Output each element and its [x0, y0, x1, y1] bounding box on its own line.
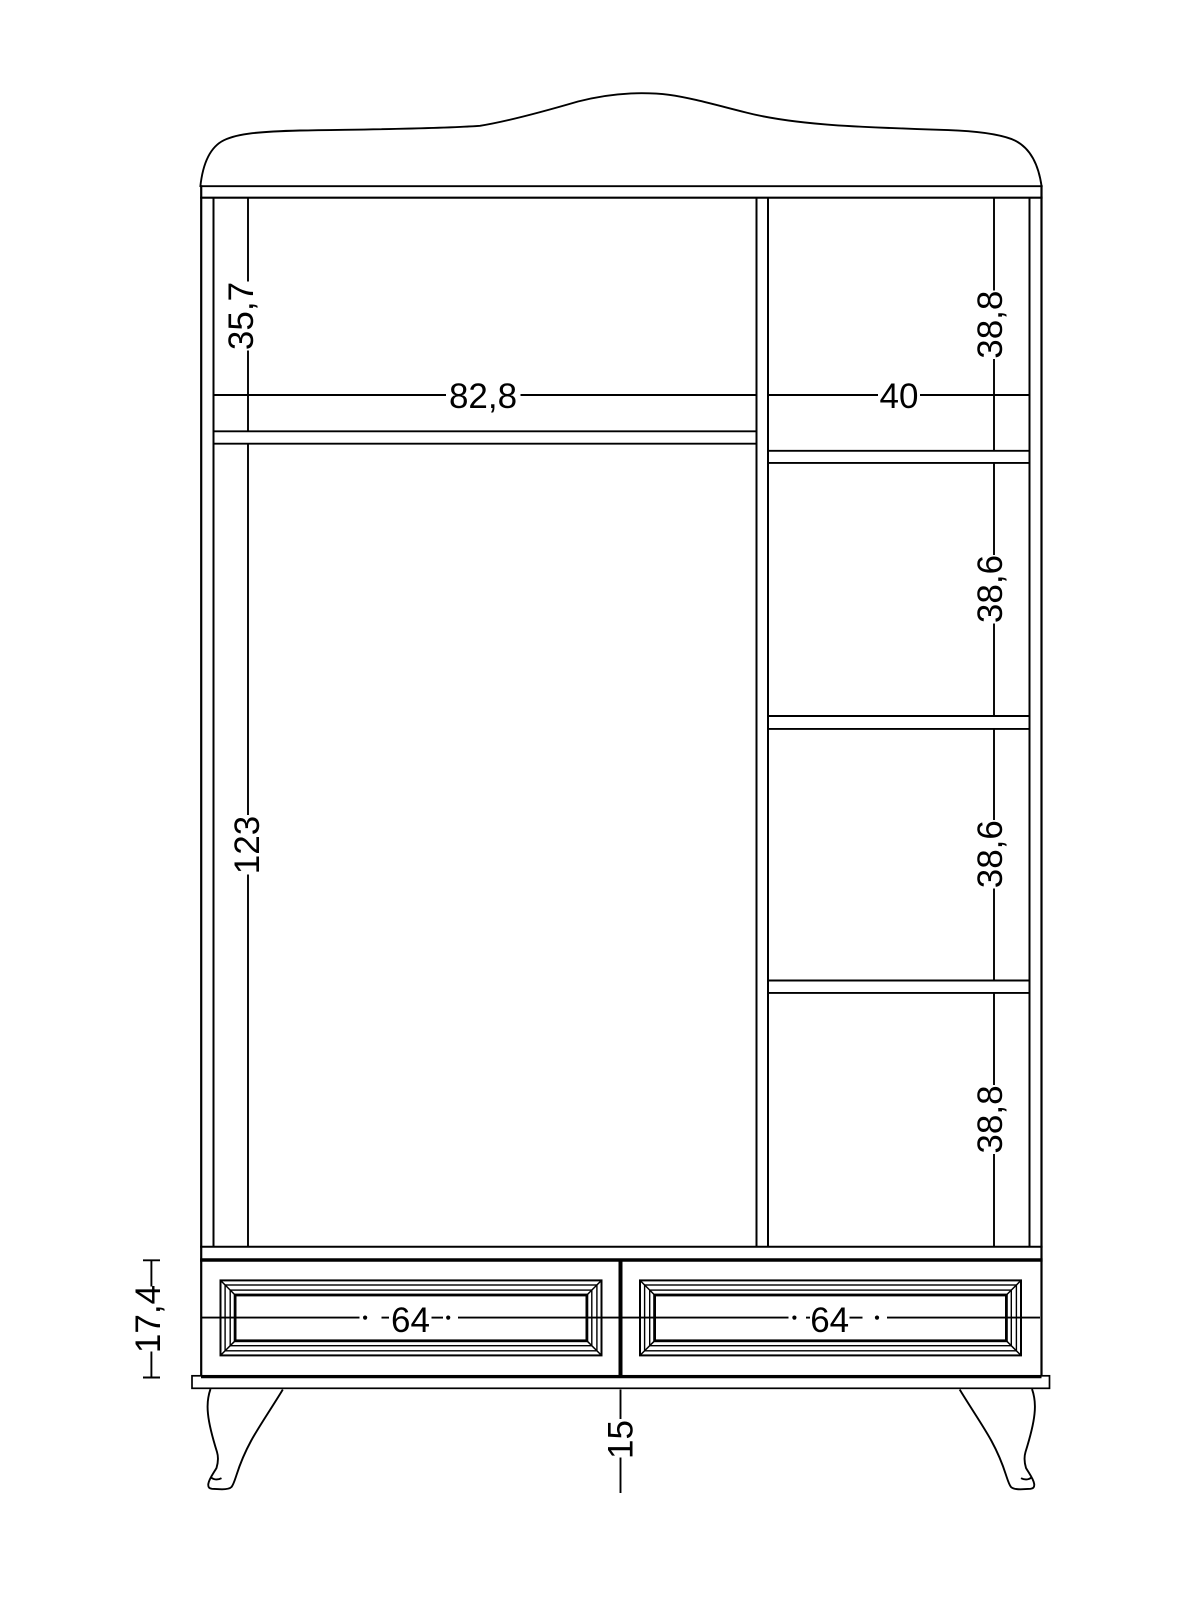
svg-text:38,8: 38,8 [971, 1085, 1010, 1153]
svg-text:35,7: 35,7 [222, 282, 261, 350]
svg-text:64: 64 [391, 1301, 430, 1340]
svg-text:82,8: 82,8 [449, 377, 517, 416]
svg-text:64: 64 [810, 1301, 849, 1340]
svg-text:38,6: 38,6 [971, 555, 1010, 623]
svg-text:40: 40 [880, 377, 919, 416]
svg-text:15: 15 [602, 1420, 641, 1459]
svg-text:123: 123 [228, 816, 267, 874]
svg-text:38,6: 38,6 [971, 820, 1010, 888]
svg-text:38,8: 38,8 [971, 291, 1010, 359]
svg-text:17,4: 17,4 [129, 1285, 168, 1353]
